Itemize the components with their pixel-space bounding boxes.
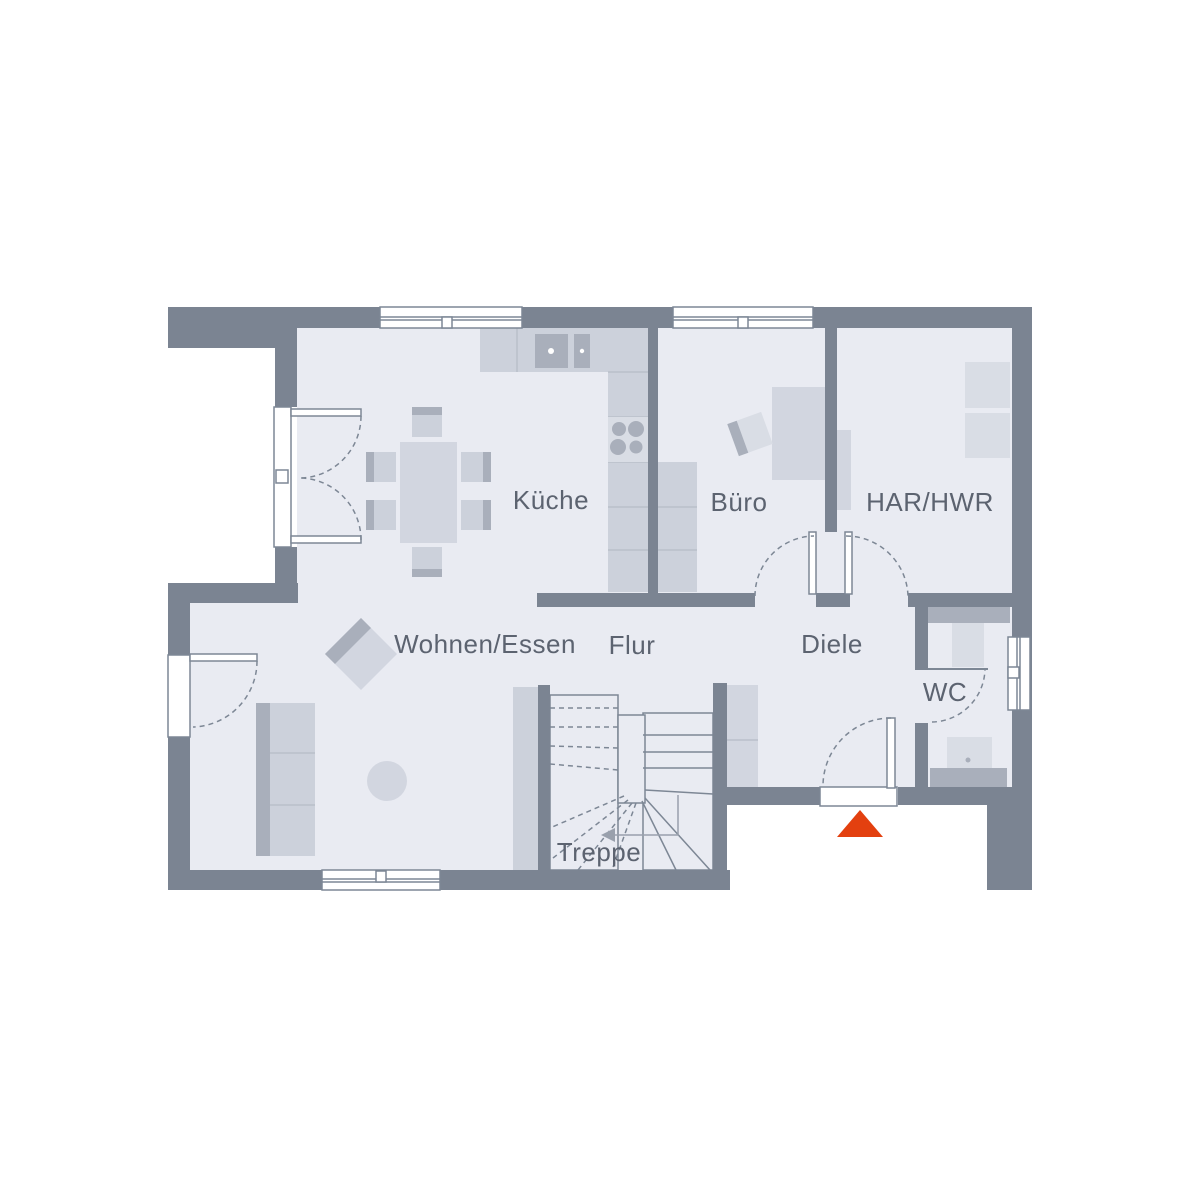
sofa (256, 703, 315, 856)
room-label-har-hwr: HAR/HWR (866, 487, 994, 517)
hallway-cabinet (727, 685, 758, 787)
room-label-treppe: Treppe (557, 837, 641, 867)
room-label-wc: WC (923, 677, 967, 707)
room-label-flur: Flur (609, 630, 656, 660)
window-icon-bottom (322, 870, 440, 890)
living-wardrobe (513, 687, 538, 870)
room-label-diele: Diele (801, 629, 863, 659)
office-cabinet (658, 462, 697, 592)
kitchen-sink-icon (535, 334, 590, 368)
coffee-table (367, 761, 407, 801)
floor-plan-canvas: Küche Büro HAR/HWR Wohnen/Essen Flur Die… (0, 0, 1200, 1200)
room-label-buero: Büro (711, 487, 768, 517)
room-label-kueche: Küche (513, 485, 589, 515)
stove-icon (608, 417, 648, 462)
window-icon-wc (1008, 637, 1030, 710)
dining-table (400, 442, 457, 543)
desk (772, 387, 825, 480)
utility-shelf (837, 430, 851, 510)
room-label-wohnen-essen: Wohnen/Essen (394, 629, 576, 659)
floor-plan-svg: Küche Büro HAR/HWR Wohnen/Essen Flur Die… (0, 0, 1200, 1200)
window-icon-top-left (380, 307, 522, 328)
window-icon-top-right (673, 307, 813, 328)
